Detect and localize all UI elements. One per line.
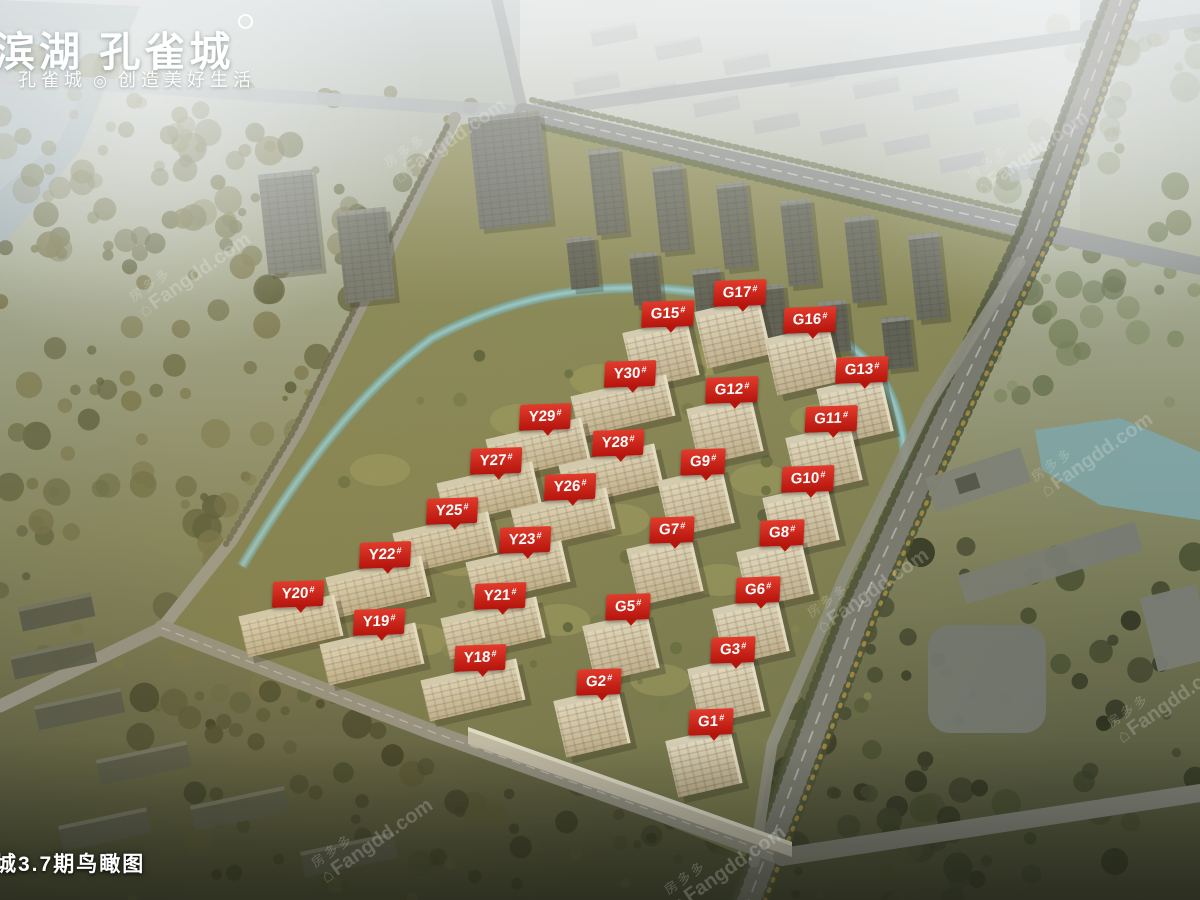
labels-layer: G17#G15#G16#Y30#G13#G12#Y29#G11#Y28#Y27#…	[0, 0, 1200, 900]
location-pin-icon: ◎	[93, 71, 112, 91]
tagline-left: 孔雀城	[18, 70, 87, 90]
building-label-Y27: Y27#	[470, 447, 522, 475]
building-label-Y29: Y29#	[519, 403, 571, 431]
building-label-Y23: Y23#	[499, 526, 551, 554]
building-label-G15: G15#	[641, 300, 695, 328]
building-label-G7: G7#	[649, 516, 695, 544]
building-label-G6: G6#	[735, 576, 781, 604]
building-label-Y18: Y18#	[454, 644, 506, 672]
logo-ring-icon	[238, 14, 253, 29]
building-label-G2: G2#	[576, 668, 622, 696]
building-label-G8: G8#	[759, 519, 805, 547]
building-label-G17: G17#	[713, 279, 767, 307]
building-label-Y20: Y20#	[272, 580, 324, 608]
building-label-Y28: Y28#	[592, 429, 644, 457]
aerial-render-image: 房多多⌂Fangdd.com房多多⌂Fangdd.com房多多⌂Fangdd.c…	[0, 0, 1200, 900]
building-label-Y26: Y26#	[544, 473, 596, 501]
building-label-G13: G13#	[835, 356, 889, 384]
building-label-G1: G1#	[688, 708, 734, 736]
building-label-Y30: Y30#	[604, 360, 656, 388]
building-label-G11: G11#	[804, 405, 857, 433]
building-label-Y25: Y25#	[426, 497, 478, 525]
brand-tagline: 孔雀城◎创造美好生活	[18, 66, 256, 92]
building-label-G9: G9#	[680, 448, 726, 476]
building-label-G16: G16#	[783, 306, 837, 334]
image-caption: 城3.7期鸟瞰图	[0, 848, 145, 878]
building-label-G12: G12#	[705, 376, 759, 404]
building-label-Y21: Y21#	[474, 582, 526, 610]
building-label-G5: G5#	[605, 593, 651, 621]
building-label-Y22: Y22#	[359, 541, 411, 569]
tagline-right: 创造美好生活	[118, 70, 256, 90]
building-label-G3: G3#	[710, 636, 756, 664]
building-label-G10: G10#	[781, 465, 835, 493]
building-label-Y19: Y19#	[353, 608, 405, 636]
